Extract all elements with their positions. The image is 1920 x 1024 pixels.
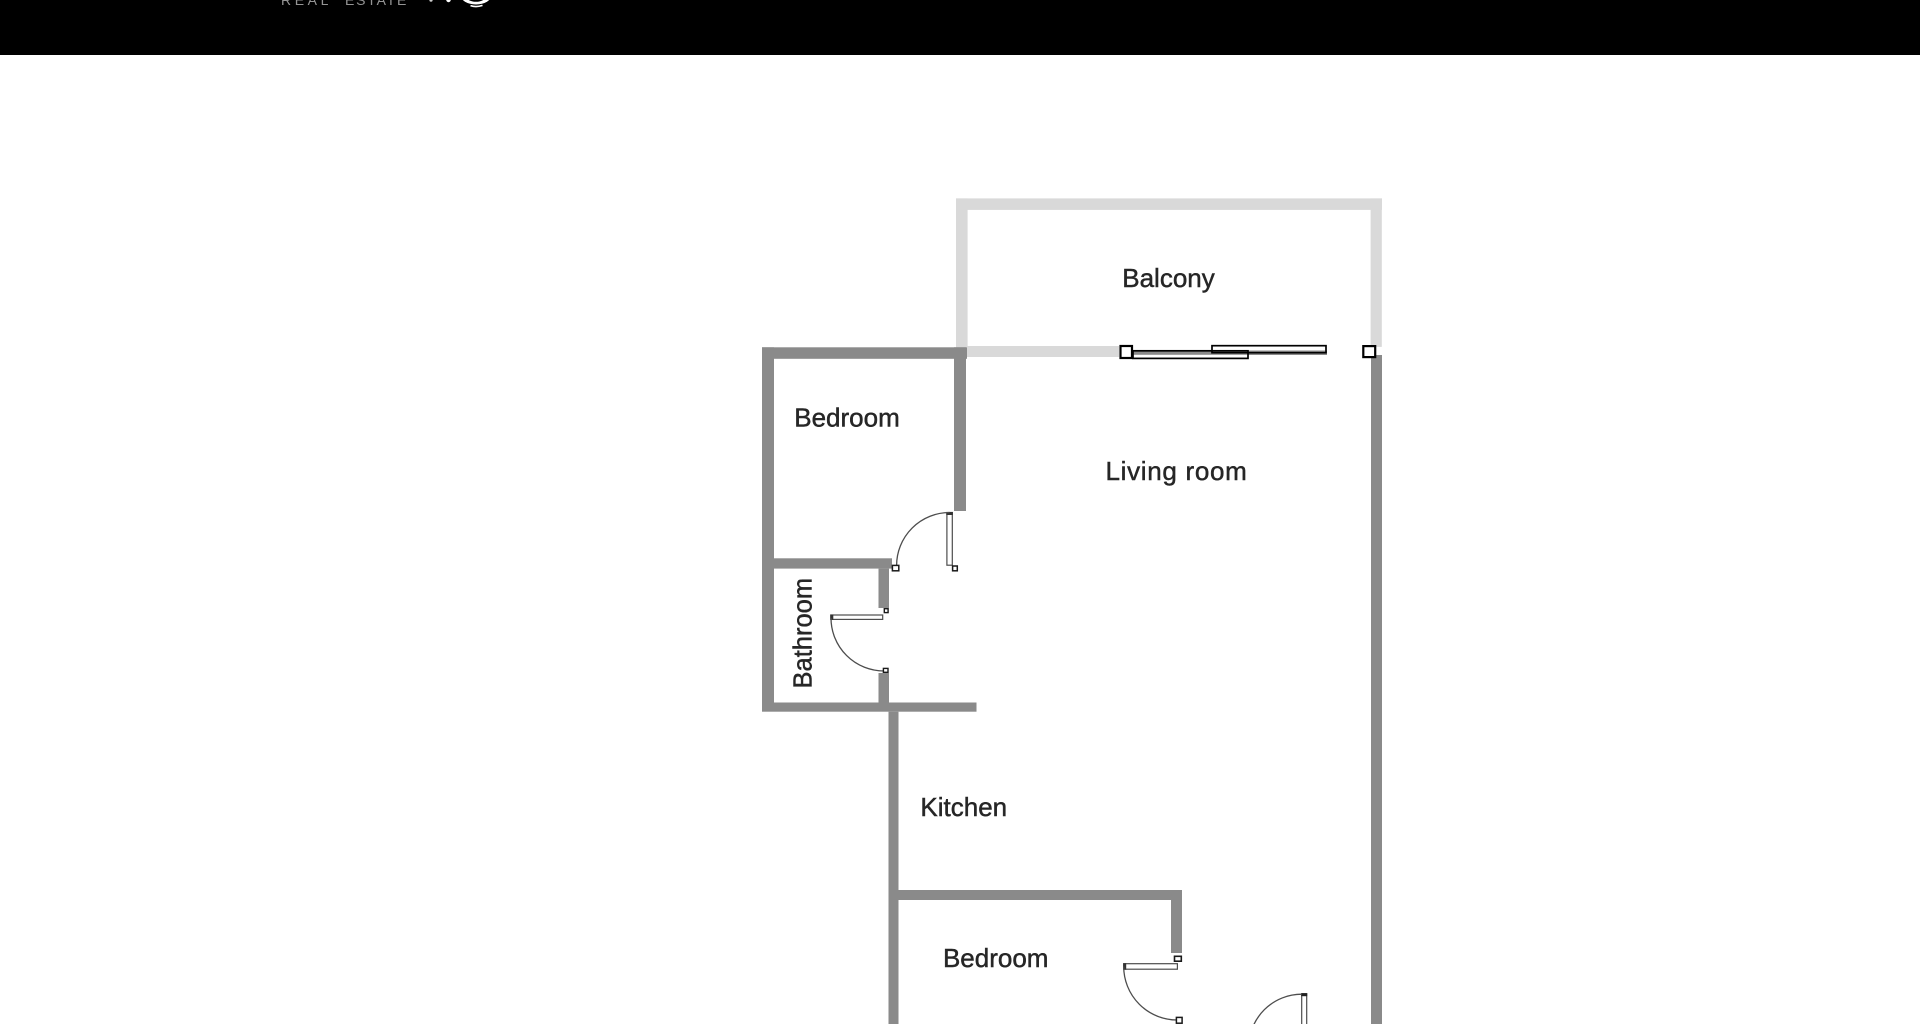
svg-text:Bedroom: Bedroom xyxy=(943,943,1049,973)
svg-text:Bedroom: Bedroom xyxy=(794,403,900,433)
svg-text:Living room: Living room xyxy=(1105,456,1247,486)
svg-text:Kitchen: Kitchen xyxy=(920,792,1007,822)
svg-text:ESTATE: ESTATE xyxy=(345,0,408,8)
svg-text:REAL: REAL xyxy=(281,0,332,8)
svg-text:Balcony: Balcony xyxy=(1122,263,1215,293)
svg-text:Bathroom: Bathroom xyxy=(790,578,818,689)
